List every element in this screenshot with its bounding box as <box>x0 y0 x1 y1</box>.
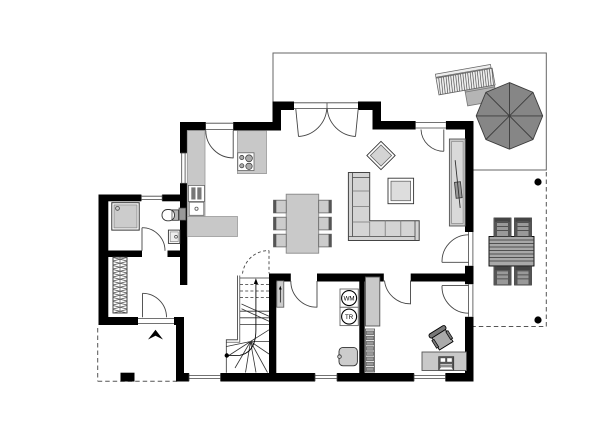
svg-text:WM: WM <box>344 295 355 302</box>
svg-text:TR: TR <box>345 314 354 321</box>
